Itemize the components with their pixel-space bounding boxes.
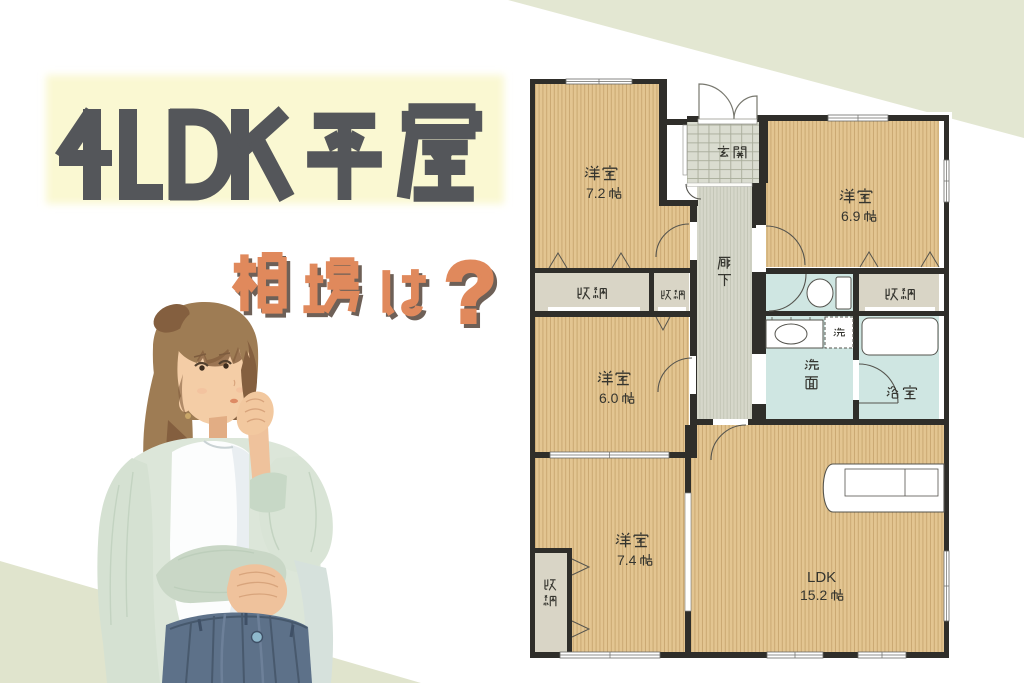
svg-text:LDK: LDK <box>807 569 836 586</box>
svg-text:6.0: 6.0 <box>599 390 619 406</box>
svg-text:7.2: 7.2 <box>586 185 606 201</box>
svg-text:?: ? <box>444 245 497 341</box>
svg-text:6.9: 6.9 <box>841 208 861 224</box>
svg-text:7.4: 7.4 <box>617 552 637 568</box>
svg-text:15.2: 15.2 <box>800 587 827 603</box>
